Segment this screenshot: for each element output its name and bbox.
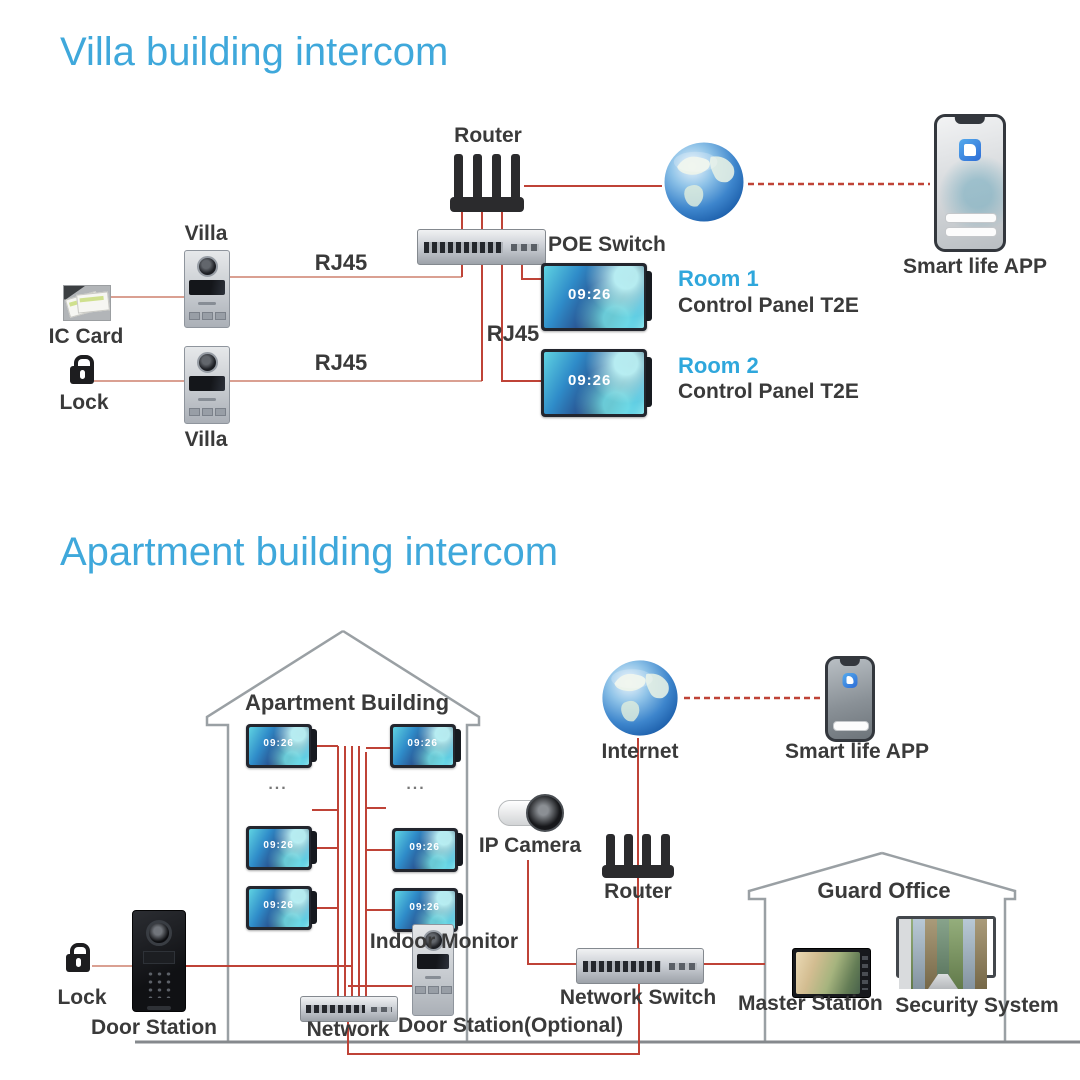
door-station-buttons (185, 312, 229, 320)
villa-door-station1-label: Villa (160, 222, 252, 246)
antenna-icon (624, 834, 633, 866)
apartment-door-station (132, 910, 186, 1012)
network-switch-label: Network Switch (558, 986, 718, 1010)
camera-icon (197, 256, 218, 277)
indoor-monitor: 09:26 (390, 724, 456, 768)
switch-ports (306, 1005, 366, 1013)
door-station-brand (198, 398, 216, 401)
apartment-building-label: Apartment Building (226, 690, 468, 716)
phone-screen (937, 117, 1003, 249)
internet-globe-icon (600, 658, 680, 738)
panel-screen: 09:26 (544, 352, 644, 414)
door-station-brand (198, 302, 216, 305)
ic-card-label: IC Card (36, 325, 136, 349)
villa-router (450, 154, 524, 212)
security-system-label: Security System (894, 994, 1060, 1018)
smart-life-phone (934, 114, 1006, 252)
door-station-display (143, 951, 175, 964)
router-base (450, 197, 524, 212)
speaker-icon (147, 1006, 171, 1010)
phone-button (945, 213, 997, 223)
door-station-glass (189, 376, 225, 391)
lock-icon (66, 954, 90, 972)
internal-network-label: Network (296, 1018, 400, 1042)
antenna-icon (661, 834, 670, 866)
villa-lock-label: Lock (40, 391, 128, 415)
rj45-label-3: RJ45 (475, 321, 551, 347)
guard-office-label: Guard Office (790, 878, 978, 904)
indoor-monitor: 09:26 (392, 828, 458, 872)
poe-switch (417, 229, 546, 265)
internet-globe-icon (662, 140, 746, 224)
villa-door-station2 (184, 346, 230, 424)
door-station-label: Door Station (88, 1016, 220, 1040)
control-panel-room2: 09:26 (541, 349, 647, 417)
clock-text: 09:26 (263, 900, 294, 911)
clock-text: 09:26 (568, 286, 611, 303)
camera-lens (526, 794, 564, 832)
ip-camera-label: IP Camera (474, 834, 586, 858)
intercom-diagram: Villa building intercom Router Smar (0, 0, 1080, 1080)
door-station-brand (425, 976, 442, 979)
antenna-icon (511, 154, 520, 198)
villa-door-station2-label: Villa (160, 428, 252, 452)
router-base (602, 865, 674, 878)
internet-label: Internet (588, 740, 692, 764)
antenna-icon (492, 154, 501, 198)
keypad-icon (146, 970, 172, 998)
villa-router-label: Router (428, 124, 548, 148)
room2-device-label: Control Panel T2E (678, 380, 888, 404)
phone-button (833, 721, 868, 731)
master-station-label: Master Station (738, 992, 880, 1016)
clock-text: 09:26 (409, 842, 440, 853)
panel-screen: 09:26 (544, 266, 644, 328)
apartment-smart-life-app-label: Smart life APP (777, 740, 937, 764)
internet-dashed-links (684, 184, 930, 698)
door-station-buttons (185, 408, 229, 416)
ip-camera-icon (498, 794, 564, 834)
apartment-router-label: Router (596, 880, 680, 904)
phone-button (945, 227, 997, 237)
switch-ports (424, 242, 503, 254)
room2-name: Room 2 (678, 353, 818, 379)
smart-life-app-icon (959, 139, 981, 161)
switch-ports (583, 961, 661, 973)
card (76, 291, 110, 313)
clock-text: 09:26 (263, 738, 294, 749)
villa-section-title: Villa building intercom (60, 30, 448, 75)
lock-icon (70, 366, 94, 384)
camera-icon (146, 920, 172, 946)
phone-notch (955, 117, 985, 124)
network-switch (576, 948, 704, 984)
optional-door-station-label: Door Station(Optional) (398, 1014, 618, 1038)
rj45-label-1: RJ45 (303, 250, 379, 276)
clock-text: 09:26 (263, 840, 294, 851)
antenna-icon (606, 834, 615, 866)
indoor-monitor-label: Indoor Monitor (364, 930, 524, 954)
antenna-icon (454, 154, 463, 198)
security-system-monitor (896, 916, 990, 992)
rj45-label-2: RJ45 (303, 350, 379, 376)
indoor-monitor: 09:26 (246, 724, 312, 768)
villa-door-station1 (184, 250, 230, 328)
door-station-glass (189, 280, 225, 295)
indoor-monitor: 09:26 (246, 886, 312, 930)
master-station-screen (796, 952, 860, 994)
apartment-router (602, 834, 674, 878)
room1-name: Room 1 (678, 266, 818, 292)
clock-text: 09:26 (568, 372, 611, 389)
control-panel-room1: 09:26 (541, 263, 647, 331)
door-station-buttons (413, 986, 453, 994)
poe-switch-label: POE Switch (548, 233, 688, 257)
phone-screen (828, 659, 872, 739)
room1-device-label: Control Panel T2E (678, 294, 888, 318)
more-floors-dots: ... (256, 776, 300, 794)
clock-text: 09:26 (409, 902, 440, 913)
phone-notch (840, 659, 860, 666)
clock-text: 09:26 (407, 738, 438, 749)
antenna-icon (642, 834, 651, 866)
smart-life-phone (825, 656, 875, 742)
camera-icon (197, 352, 218, 373)
ic-card-icon (63, 285, 111, 321)
master-station (792, 948, 871, 998)
villa-smart-life-app-label: Smart life APP (895, 255, 1055, 279)
smart-life-app-icon (843, 673, 858, 688)
apartment-section-title: Apartment building intercom (60, 530, 558, 575)
indoor-monitor: 09:26 (246, 826, 312, 870)
apartment-lock-label: Lock (42, 986, 122, 1010)
antenna-icon (473, 154, 482, 198)
door-station-glass (417, 954, 449, 969)
more-floors-dots: ... (394, 776, 438, 794)
